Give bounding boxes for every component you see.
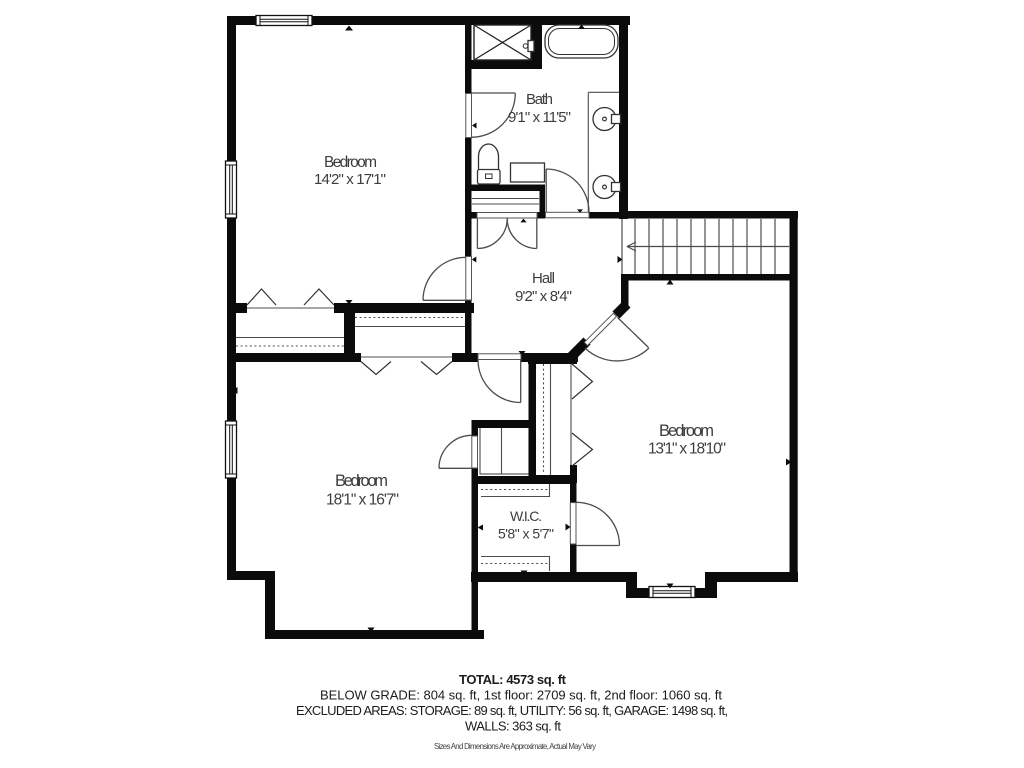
svg-text:Hall: Hall [532,270,555,287]
svg-text:9'1" x 11'5": 9'1" x 11'5" [508,109,571,126]
svg-text:Bath: Bath [526,91,553,108]
svg-text:W.I.C.: W.I.C. [510,508,542,524]
svg-text:Sizes And Dimensions Are Appro: Sizes And Dimensions Are Approximate, Ac… [434,742,596,751]
svg-text:WALLS: 363 sq. ft: WALLS: 363 sq. ft [465,719,561,734]
svg-text:EXCLUDED AREAS: STORAGE: 89 sq: EXCLUDED AREAS: STORAGE: 89 sq. ft, UTIL… [296,703,728,718]
svg-text:BELOW GRADE: 804 sq. ft, 1st f: BELOW GRADE: 804 sq. ft, 1st floor: 2709… [320,688,722,703]
svg-text:9'2" x 8'4": 9'2" x 8'4" [515,288,572,305]
svg-text:5'8" x 5'7": 5'8" x 5'7" [498,526,554,542]
svg-text:14'2" x 17'1": 14'2" x 17'1" [314,171,386,188]
svg-text:13'1" x 18'10": 13'1" x 18'10" [648,441,726,458]
svg-text:Bedroom: Bedroom [659,422,714,440]
svg-text:Bedroom: Bedroom [324,154,377,171]
svg-text:18'1" x 16'7": 18'1" x 16'7" [326,492,399,509]
svg-text:Bedroom: Bedroom [335,472,388,490]
svg-text:TOTAL: 4573 sq. ft: TOTAL: 4573 sq. ft [459,672,567,687]
